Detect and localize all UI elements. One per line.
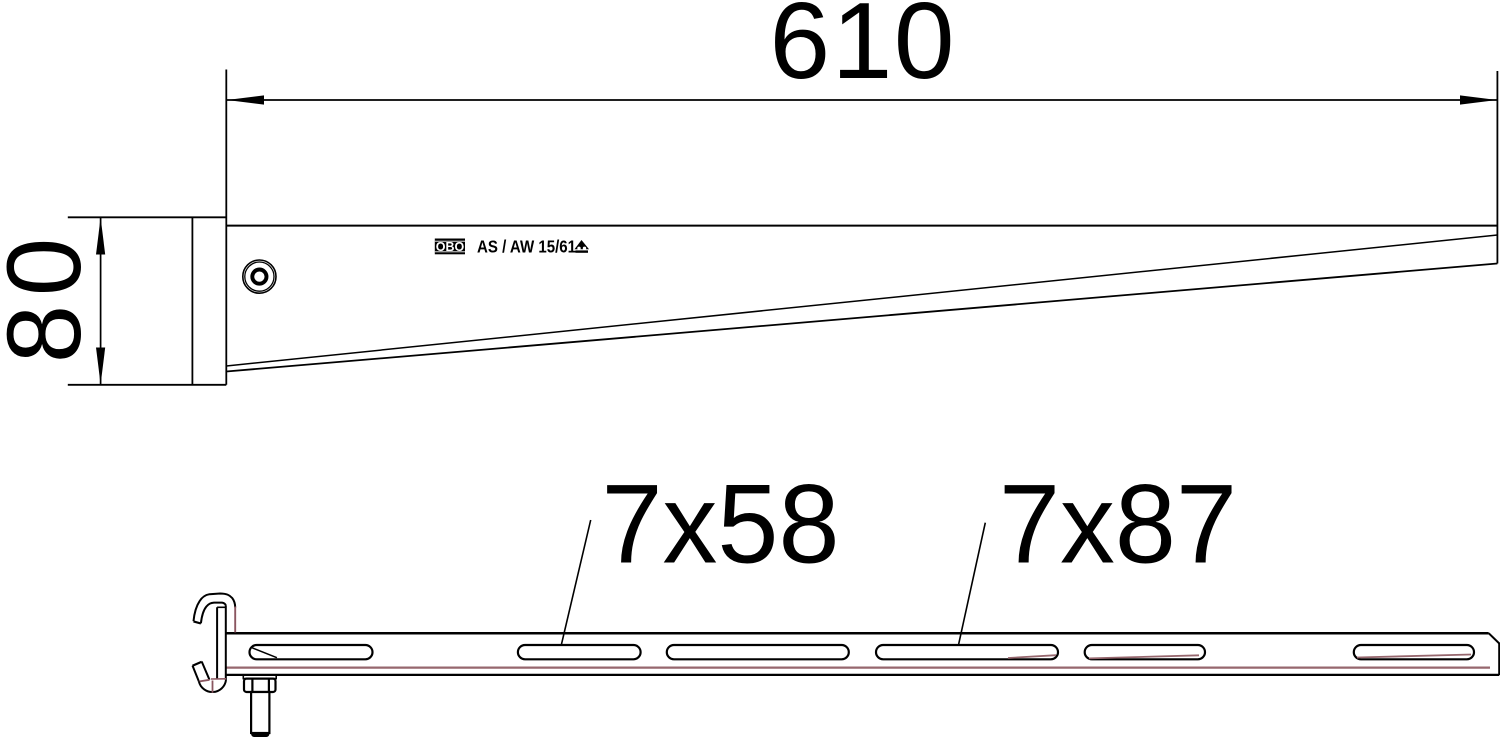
svg-text:7x58: 7x58 [602, 462, 840, 587]
svg-text:80: 80 [0, 238, 103, 364]
svg-text:610: 610 [770, 0, 955, 102]
svg-text:AS / AW 15/61: AS / AW 15/61 [477, 236, 576, 256]
svg-text:7x87: 7x87 [999, 462, 1237, 587]
